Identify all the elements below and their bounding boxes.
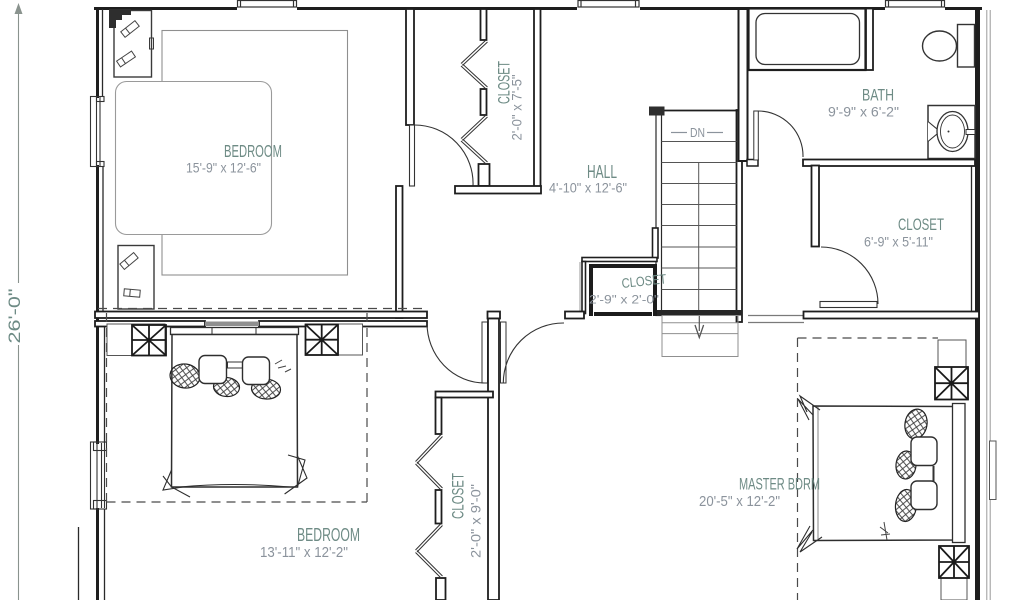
svg-text:9'-9" x 6'-2": 9'-9" x 6'-2" (828, 104, 899, 120)
svg-text:15'-9" x 12'-6": 15'-9" x 12'-6" (186, 160, 261, 176)
svg-text:13'-11" x 12'-2": 13'-11" x 12'-2" (260, 545, 348, 561)
svg-text:2'-0" x 9'-0": 2'-0" x 9'-0" (469, 484, 484, 558)
svg-text:BEDROOM: BEDROOM (224, 141, 282, 161)
svg-text:2'-9" x 2'-0": 2'-9" x 2'-0" (589, 293, 659, 307)
svg-text:6'-9" x 5'-11": 6'-9" x 5'-11" (864, 234, 933, 250)
svg-text:2'-0" x 7'-5": 2'-0" x 7'-5" (510, 74, 525, 140)
svg-text:4'-10" x 12'-6": 4'-10" x 12'-6" (549, 180, 627, 196)
svg-text:MASTER BDRM: MASTER BDRM (739, 475, 820, 494)
svg-text:CLOSET: CLOSET (450, 473, 468, 519)
svg-text:20'-5" x 12'-2": 20'-5" x 12'-2" (699, 494, 780, 510)
svg-text:DN: DN (690, 126, 705, 140)
svg-text:BATH: BATH (862, 86, 894, 105)
svg-text:BEDROOM: BEDROOM (297, 525, 360, 545)
svg-text:26'-0": 26'-0" (5, 289, 24, 344)
svg-text:CLOSET: CLOSET (898, 215, 944, 234)
